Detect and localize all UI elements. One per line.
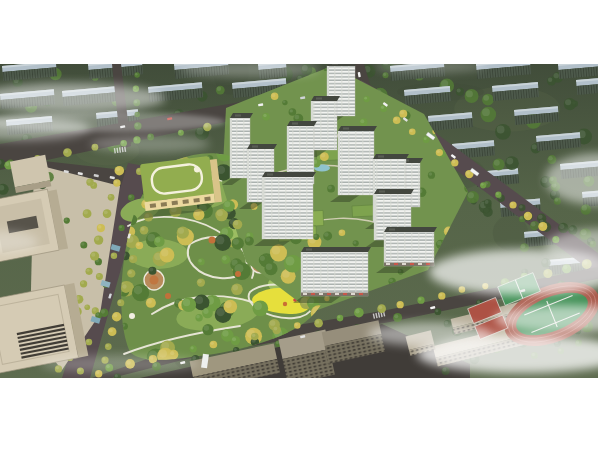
retail-awning xyxy=(351,293,355,295)
autumn-tree xyxy=(209,237,216,244)
street-tree-highlight xyxy=(170,351,174,355)
street-tree-highlight xyxy=(86,269,89,272)
street-tree-highlight xyxy=(115,374,118,377)
street-tree-highlight xyxy=(381,106,384,109)
tower-facade xyxy=(311,101,337,150)
roof-unit xyxy=(378,155,384,157)
tower xyxy=(293,247,371,303)
tower-facade xyxy=(338,131,374,195)
street-tree-highlight xyxy=(234,348,237,351)
street-tree-highlight xyxy=(510,202,513,205)
street-tree-highlight xyxy=(477,300,480,303)
street-tree-highlight xyxy=(496,192,499,195)
street-tree-highlight xyxy=(337,316,340,319)
street-tree-highlight xyxy=(190,346,193,349)
kindergarten-window xyxy=(172,201,178,206)
street-tree-highlight xyxy=(95,237,99,241)
kindergarten-window xyxy=(150,203,156,208)
retail-awning xyxy=(410,263,414,265)
tower-edge xyxy=(301,252,303,296)
street-tree-highlight xyxy=(424,137,427,140)
street-tree-highlight xyxy=(104,210,108,214)
retail-awning xyxy=(386,263,390,265)
kindergarten-window xyxy=(161,202,167,207)
play-equipment xyxy=(283,302,287,306)
roof-unit xyxy=(235,114,241,116)
screenshot-canvas: Aerial 3D architectural rendering of a r… xyxy=(0,0,600,450)
street-tree-highlight xyxy=(113,313,117,317)
street-tree-highlight xyxy=(128,270,132,274)
street-tree-highlight xyxy=(96,313,99,316)
retail-awning xyxy=(343,293,347,295)
tower-facade xyxy=(301,252,368,296)
retail-awning xyxy=(359,293,363,295)
tower-edge xyxy=(384,232,386,266)
roof-unit xyxy=(306,248,312,250)
retail-awning xyxy=(319,293,323,295)
street-tree-highlight xyxy=(418,297,421,300)
tower-facade xyxy=(384,232,434,266)
tower-edge xyxy=(374,194,376,240)
street-tree-highlight xyxy=(437,150,440,153)
roof-unit xyxy=(267,173,273,175)
tower xyxy=(254,172,316,246)
tower-roof xyxy=(327,64,358,66)
retail-awning xyxy=(426,263,430,265)
street-tree-highlight xyxy=(481,183,484,186)
roof-unit xyxy=(379,190,385,192)
retail-awning xyxy=(327,293,331,295)
street-tree-highlight xyxy=(435,309,438,312)
street-tree-highlight xyxy=(64,149,68,153)
street-tree-highlight xyxy=(394,314,398,318)
street-tree-highlight xyxy=(109,328,113,332)
office-block xyxy=(10,155,51,193)
street-tree-highlight xyxy=(130,256,134,260)
roof-unit xyxy=(332,64,338,65)
tower-roof xyxy=(230,113,253,118)
street-tree-highlight xyxy=(273,327,277,331)
street-tree-highlight xyxy=(192,356,196,360)
roof-unit xyxy=(316,97,322,99)
street-tree-highlight xyxy=(114,180,117,183)
street-tree-highlight xyxy=(122,284,126,288)
street-tree-highlight xyxy=(179,131,182,134)
tower-edge xyxy=(247,149,249,202)
street-tree-highlight xyxy=(452,160,455,163)
retail-awning xyxy=(311,293,315,295)
roof-unit xyxy=(343,127,349,129)
cloud xyxy=(368,322,492,346)
street-tree-highlight xyxy=(525,213,529,217)
tower-edge xyxy=(230,118,232,178)
retail-awning xyxy=(303,293,307,295)
autumn-tree xyxy=(165,293,171,299)
street-tree-highlight xyxy=(364,97,367,100)
tower-roof xyxy=(247,144,277,149)
roof-unit xyxy=(252,145,258,147)
retail-awning xyxy=(418,263,422,265)
street-tree-highlight xyxy=(290,109,293,112)
street-tree-highlight xyxy=(315,320,319,324)
tower-edge xyxy=(262,177,264,239)
street-tree-highlight xyxy=(112,253,115,256)
street-tree-highlight xyxy=(98,225,102,229)
aerial-render-image: Aerial 3D architectural rendering of a r… xyxy=(0,64,600,378)
roof-unit xyxy=(389,228,395,230)
street-tree-highlight xyxy=(466,171,470,175)
tower xyxy=(376,227,437,273)
street-tree-highlight xyxy=(141,227,145,231)
tower-roof xyxy=(311,96,340,101)
street-tree-highlight xyxy=(397,302,400,305)
autumn-tree xyxy=(235,271,241,277)
housing-slab xyxy=(576,78,600,95)
street-tree-highlight xyxy=(109,195,112,198)
street-tree-highlight xyxy=(232,337,236,341)
street-tree-highlight xyxy=(129,195,132,198)
street-tree-highlight xyxy=(91,253,95,257)
street-tree-highlight xyxy=(211,342,214,345)
street-tree-highlight xyxy=(263,114,266,117)
street-tree-highlight xyxy=(119,226,122,229)
park-canopy xyxy=(129,313,135,319)
street-tree-highlight xyxy=(378,305,382,309)
roof-unit xyxy=(292,122,298,124)
street-tree-highlight xyxy=(137,169,140,172)
kindergarten-window xyxy=(204,197,210,202)
street-tree-highlight xyxy=(394,117,397,120)
street-tree-highlight xyxy=(252,334,255,337)
street-tree-highlight xyxy=(439,293,442,296)
street-tree-highlight xyxy=(116,167,120,171)
cloud xyxy=(40,355,200,373)
tower-facade xyxy=(262,177,313,239)
street-tree-highlight xyxy=(5,162,9,166)
retail-awning xyxy=(335,293,339,295)
tower-edge xyxy=(338,131,340,195)
retail-awning xyxy=(402,263,406,265)
street-tree-highlight xyxy=(137,243,140,246)
street-tree-highlight xyxy=(355,309,359,313)
street-tree-highlight xyxy=(81,281,84,284)
planting-bed xyxy=(150,276,159,285)
cloud xyxy=(90,135,210,153)
kindergarten-window xyxy=(182,199,188,204)
street-tree-highlight xyxy=(106,344,109,347)
kindergarten-window xyxy=(193,198,199,203)
street-tree-highlight xyxy=(118,300,121,303)
street-tree-highlight xyxy=(86,340,89,343)
street-tree-highlight xyxy=(295,323,298,326)
street-tree-highlight xyxy=(539,223,543,227)
street-tree-highlight xyxy=(410,129,413,132)
tower-roof xyxy=(287,121,317,126)
retail-awning xyxy=(394,263,398,265)
street-tree-highlight xyxy=(276,341,279,344)
street-tree-highlight xyxy=(135,73,137,75)
